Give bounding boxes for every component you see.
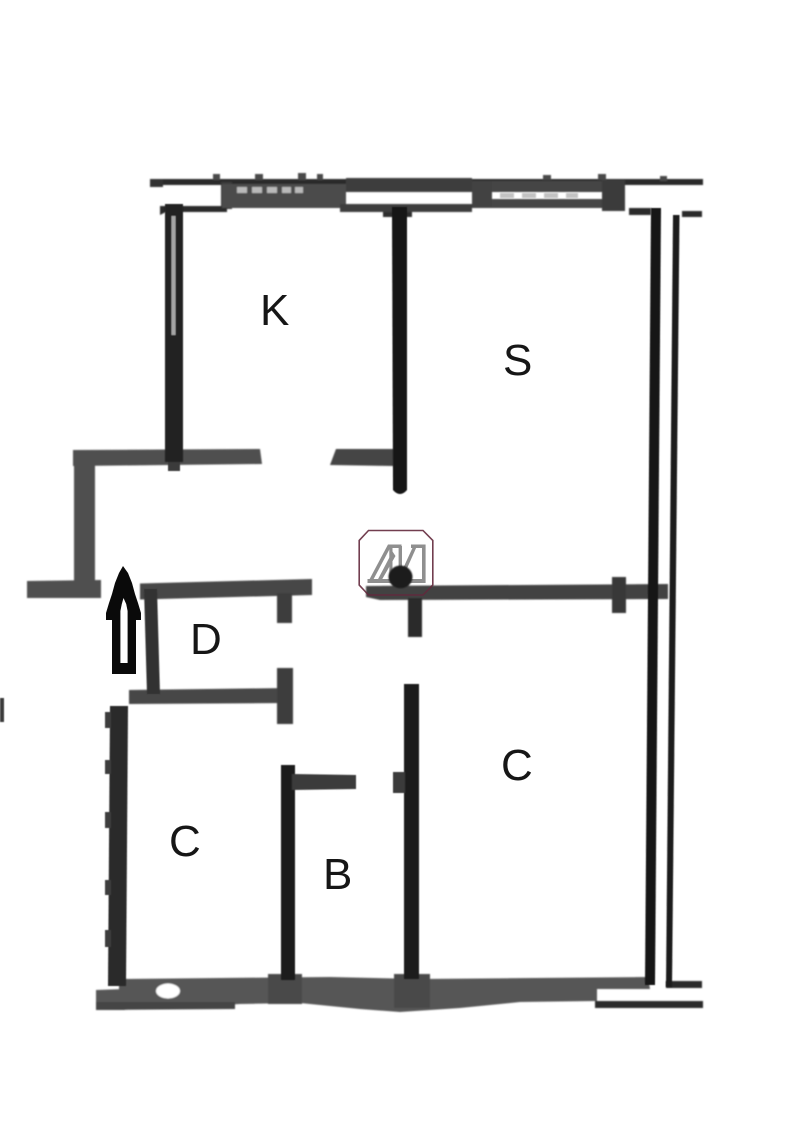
svg-text:D: D	[190, 615, 222, 664]
svg-text:C: C	[169, 817, 201, 866]
svg-text:S: S	[503, 336, 532, 385]
svg-text:B: B	[323, 850, 352, 899]
svg-text:K: K	[260, 286, 289, 335]
svg-text:C: C	[501, 741, 533, 790]
